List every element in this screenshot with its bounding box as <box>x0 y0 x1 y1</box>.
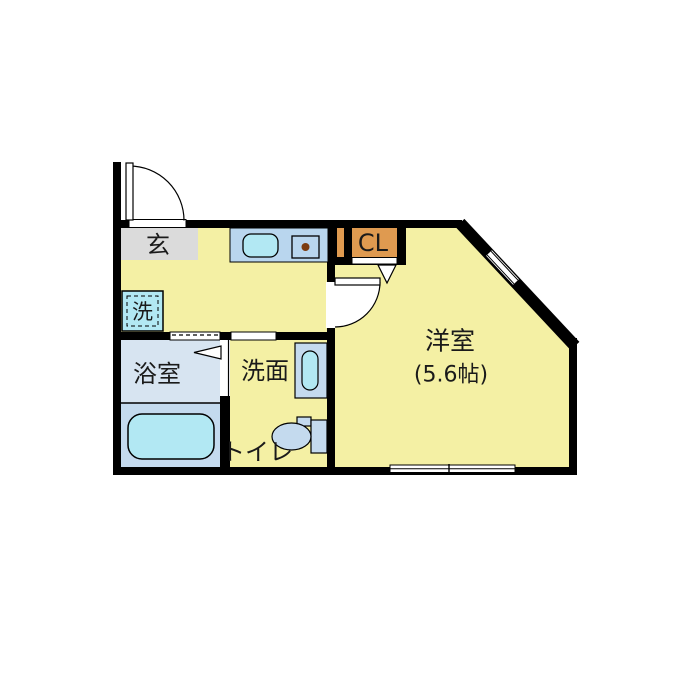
room-door-leaf-icon <box>335 278 380 285</box>
label-western-room: 洋室 <box>425 327 475 356</box>
label-western-room-size: (5.6帖) <box>414 363 488 388</box>
kitchen-counter <box>230 228 328 262</box>
hall-bath-sill <box>170 332 220 340</box>
stove-burner-icon <box>302 243 310 251</box>
washroom-opening <box>231 332 276 340</box>
entrance-opening <box>129 220 186 228</box>
entrance-door-leaf-icon <box>126 163 133 220</box>
bathtub-icon <box>128 414 214 459</box>
toilet-tank-icon <box>311 420 327 453</box>
room-door-opening <box>326 282 336 328</box>
label-washer: 洗 <box>132 300 153 324</box>
closet-door-sill <box>352 258 397 265</box>
kitchen-sink-icon <box>243 234 278 257</box>
wall-washroom-room <box>327 340 335 467</box>
label-closet: CL <box>358 229 389 257</box>
wall-right <box>569 338 577 475</box>
floorplan-page: 玄 CL 洋室 (5.6帖) 浴室 洗面 トイレ 洗 <box>0 0 700 700</box>
wall-hall-bath <box>113 332 335 340</box>
label-bathroom: 浴室 <box>133 360 181 388</box>
label-genkan: 玄 <box>146 231 170 259</box>
wall-left <box>113 162 121 475</box>
washbasin-bowl-icon <box>302 351 318 390</box>
floorplan-svg: 玄 CL 洋室 (5.6帖) 浴室 洗面 トイレ 洗 <box>0 0 700 700</box>
label-washroom: 洗面 <box>241 357 289 385</box>
washbasin <box>295 343 327 398</box>
closet-side-strip <box>337 228 344 257</box>
label-toilet: トイレ <box>221 438 293 466</box>
